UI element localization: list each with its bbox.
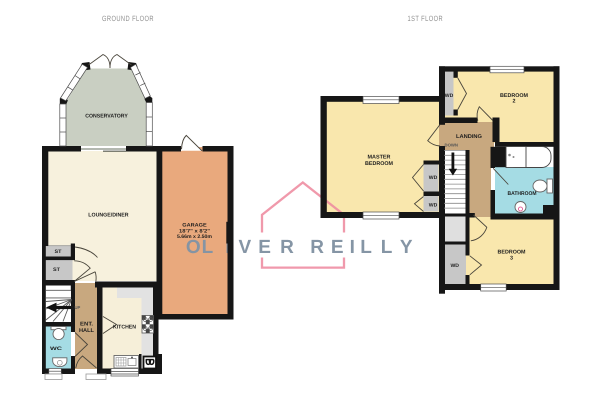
svg-text:HALL: HALL	[79, 328, 95, 334]
svg-text:WC: WC	[50, 346, 63, 352]
svg-text:LANDING: LANDING	[456, 134, 482, 140]
svg-text:UP: UP	[75, 305, 81, 310]
svg-text:CONSERVATORY: CONSERVATORY	[85, 113, 128, 119]
svg-text:2: 2	[513, 99, 516, 105]
svg-text:BATHROOM: BATHROOM	[508, 191, 537, 197]
svg-text:WD: WD	[451, 263, 460, 269]
svg-text:KITCHEN: KITCHEN	[113, 325, 136, 331]
svg-text:GROUND FLOOR: GROUND FLOOR	[102, 14, 154, 23]
svg-text:5.66m x 2.50m: 5.66m x 2.50m	[177, 234, 213, 240]
svg-text:3: 3	[510, 255, 513, 261]
svg-text:ENT.: ENT.	[80, 322, 94, 328]
svg-text:MASTER: MASTER	[368, 154, 391, 160]
svg-text:BEDROOM: BEDROOM	[365, 161, 394, 167]
svg-text:LOUNGE/DINER: LOUNGE/DINER	[88, 212, 128, 218]
svg-text:WD: WD	[429, 175, 438, 181]
svg-text:1ST FLOOR: 1ST FLOOR	[408, 14, 444, 23]
svg-text:WD: WD	[445, 93, 454, 99]
svg-text:ST: ST	[53, 267, 60, 273]
svg-text:DOWN: DOWN	[445, 142, 459, 147]
svg-text:ST: ST	[55, 249, 62, 255]
svg-text:WD: WD	[429, 202, 438, 208]
